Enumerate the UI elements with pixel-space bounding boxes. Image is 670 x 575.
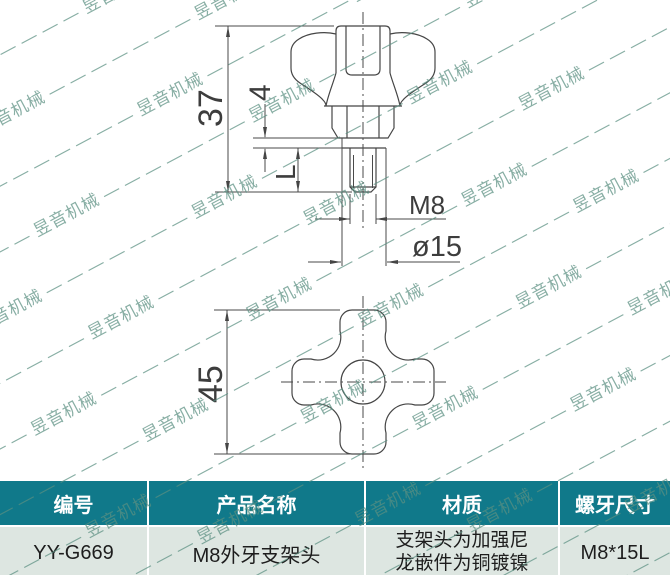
header-thread-size: 螺牙尺寸: [560, 481, 670, 525]
dimension-lines: [215, 26, 460, 266]
front-view: [281, 296, 446, 469]
front-view-dimensions: 45: [192, 310, 364, 454]
dim-arrow: [225, 443, 229, 454]
cell-material-line1: 支架头为加强尼: [395, 530, 528, 553]
dim-label-step: 4: [244, 84, 277, 101]
dim-arrow: [387, 260, 398, 264]
dim-arrow: [376, 217, 387, 221]
dim-label-knob-width: 45: [192, 365, 230, 403]
dim-arrow: [296, 148, 300, 159]
dim-arrow: [226, 181, 230, 192]
dim-arrow: [226, 26, 230, 37]
cell-product-name: M8外牙支架头: [149, 527, 364, 575]
dim-arrow: [339, 217, 350, 221]
side-view-dimensions: 37 4 L M8 ø15: [192, 26, 462, 266]
dim-label-washer-diameter: ø15: [412, 231, 462, 263]
spec-table: 编号 产品名称 材质 螺牙尺寸 YY-G669 M8外牙支架头 支架头为加强尼 …: [0, 481, 670, 575]
dim-label-overall-height: 37: [192, 89, 230, 127]
dim-arrow: [263, 148, 267, 159]
cell-code: YY-G669: [0, 527, 147, 575]
dim-arrow: [296, 181, 300, 192]
header-material: 材质: [366, 481, 558, 525]
cell-material: 支架头为加强尼 龙嵌件为铜镀镍: [366, 527, 558, 575]
cell-thread-size: M8*15L: [560, 527, 670, 575]
header-product-name: 产品名称: [149, 481, 364, 525]
dim-arrow: [263, 127, 267, 138]
technical-drawing: 37 4 L M8 ø15 45: [0, 0, 670, 480]
dim-label-thread-length: L: [270, 164, 301, 180]
dim-arrow: [225, 310, 229, 321]
catalog-page: 昱音机械 — — — — — — — 昱音机械 — — — — — — — 昱音…: [0, 0, 670, 575]
header-code: 编号: [0, 481, 147, 525]
dim-arrow: [330, 260, 341, 264]
dim-label-thread: M8: [409, 190, 445, 220]
cell-material-line2: 龙嵌件为铜镀镍: [395, 553, 528, 575]
